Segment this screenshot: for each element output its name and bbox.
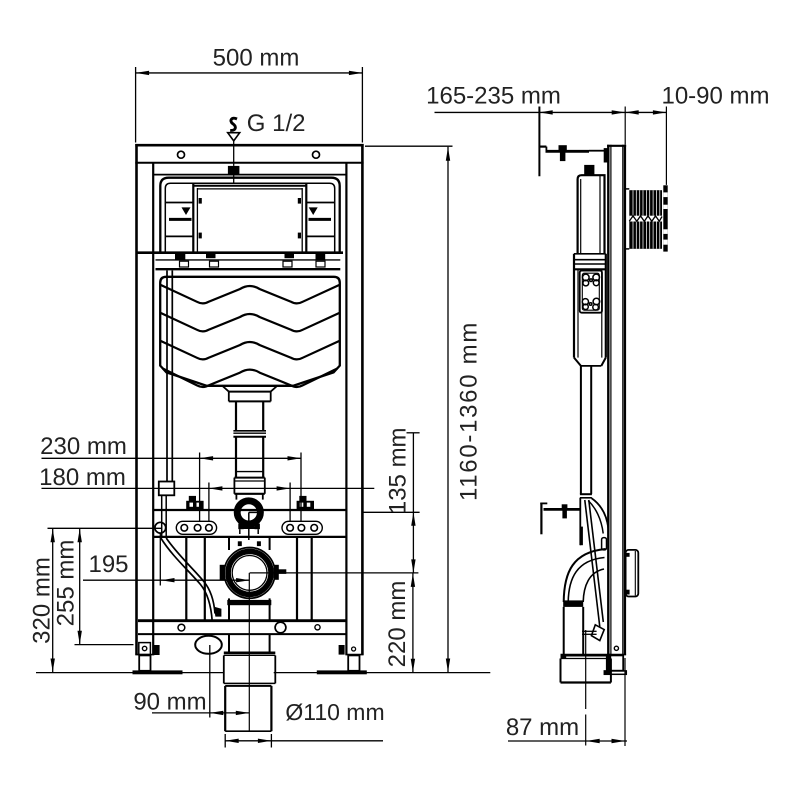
svg-text:255 mm: 255 mm [53,540,80,627]
svg-text:195: 195 [88,551,128,578]
svg-text:G 1/2: G 1/2 [247,110,306,137]
svg-text:135 mm: 135 mm [385,427,412,514]
svg-text:87 mm: 87 mm [506,714,579,741]
svg-text:165-235 mm: 165-235 mm [426,83,561,110]
svg-text:Ø110 mm: Ø110 mm [285,699,384,725]
svg-text:230 mm: 230 mm [40,433,127,460]
svg-text:10-90 mm: 10-90 mm [661,83,769,110]
svg-text:180 mm: 180 mm [39,464,126,491]
svg-text:220 mm: 220 mm [384,581,411,668]
svg-text:1160-1360 mm: 1160-1360 mm [456,321,483,501]
svg-text:90 mm: 90 mm [133,689,206,716]
svg-text:320 mm: 320 mm [29,557,56,644]
svg-text:500 mm: 500 mm [213,45,300,72]
